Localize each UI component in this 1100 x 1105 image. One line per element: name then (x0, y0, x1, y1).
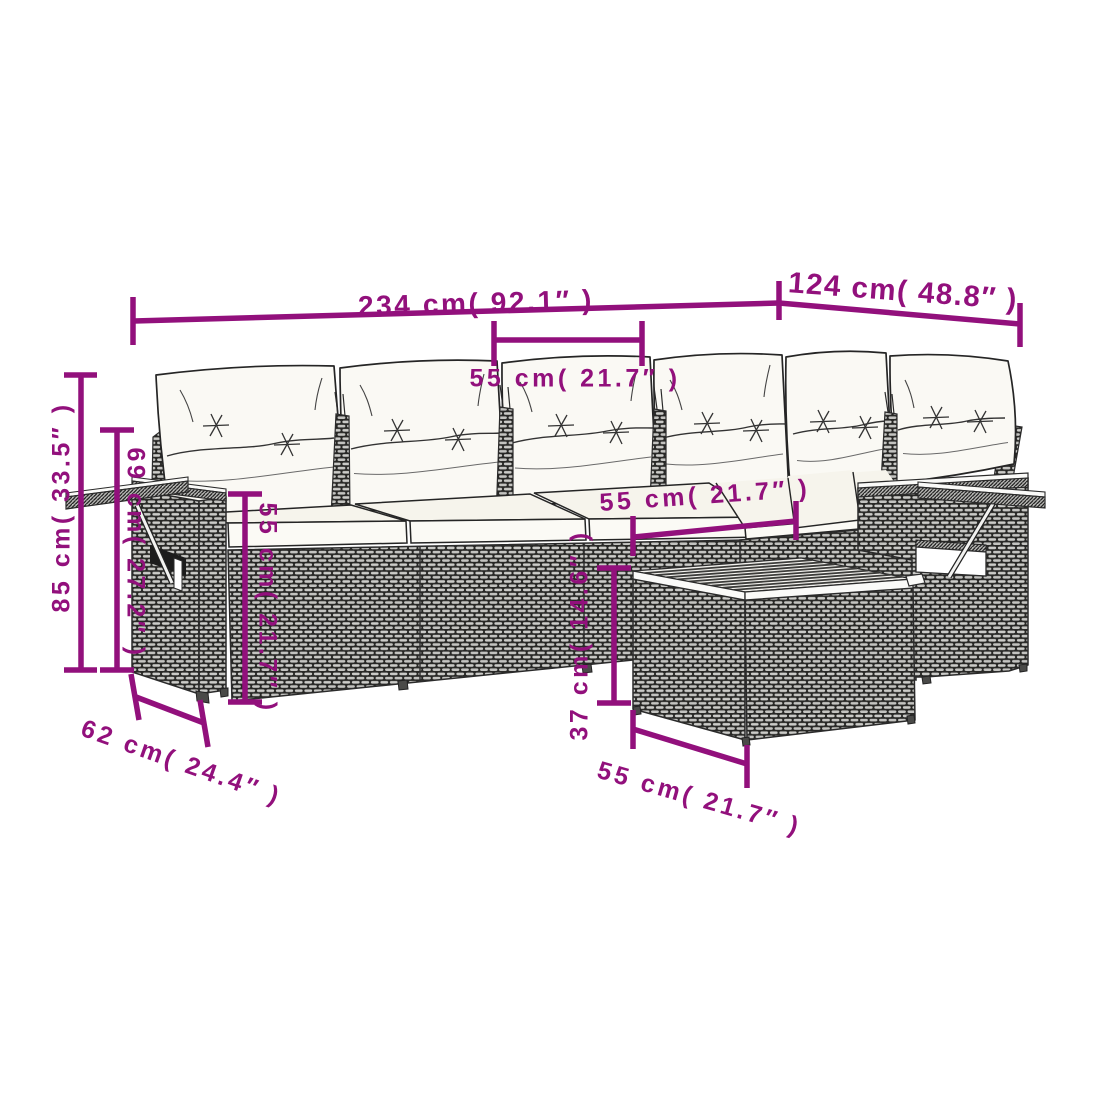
svg-text:37 cm( 14.6″ ): 37 cm( 14.6″ ) (566, 529, 594, 740)
svg-text:55 cm( 21.7″ ): 55 cm( 21.7″ ) (469, 365, 680, 393)
svg-text:69 cm( 27.2″ ): 69 cm( 27.2″ ) (121, 447, 149, 658)
svg-text:85 cm( 33.5″ ): 85 cm( 33.5″ ) (48, 401, 76, 612)
svg-text:234 cm( 92.1″ ): 234 cm( 92.1″ ) (358, 284, 595, 322)
svg-text:55 cm( 21.7″ ): 55 cm( 21.7″ ) (253, 502, 281, 713)
